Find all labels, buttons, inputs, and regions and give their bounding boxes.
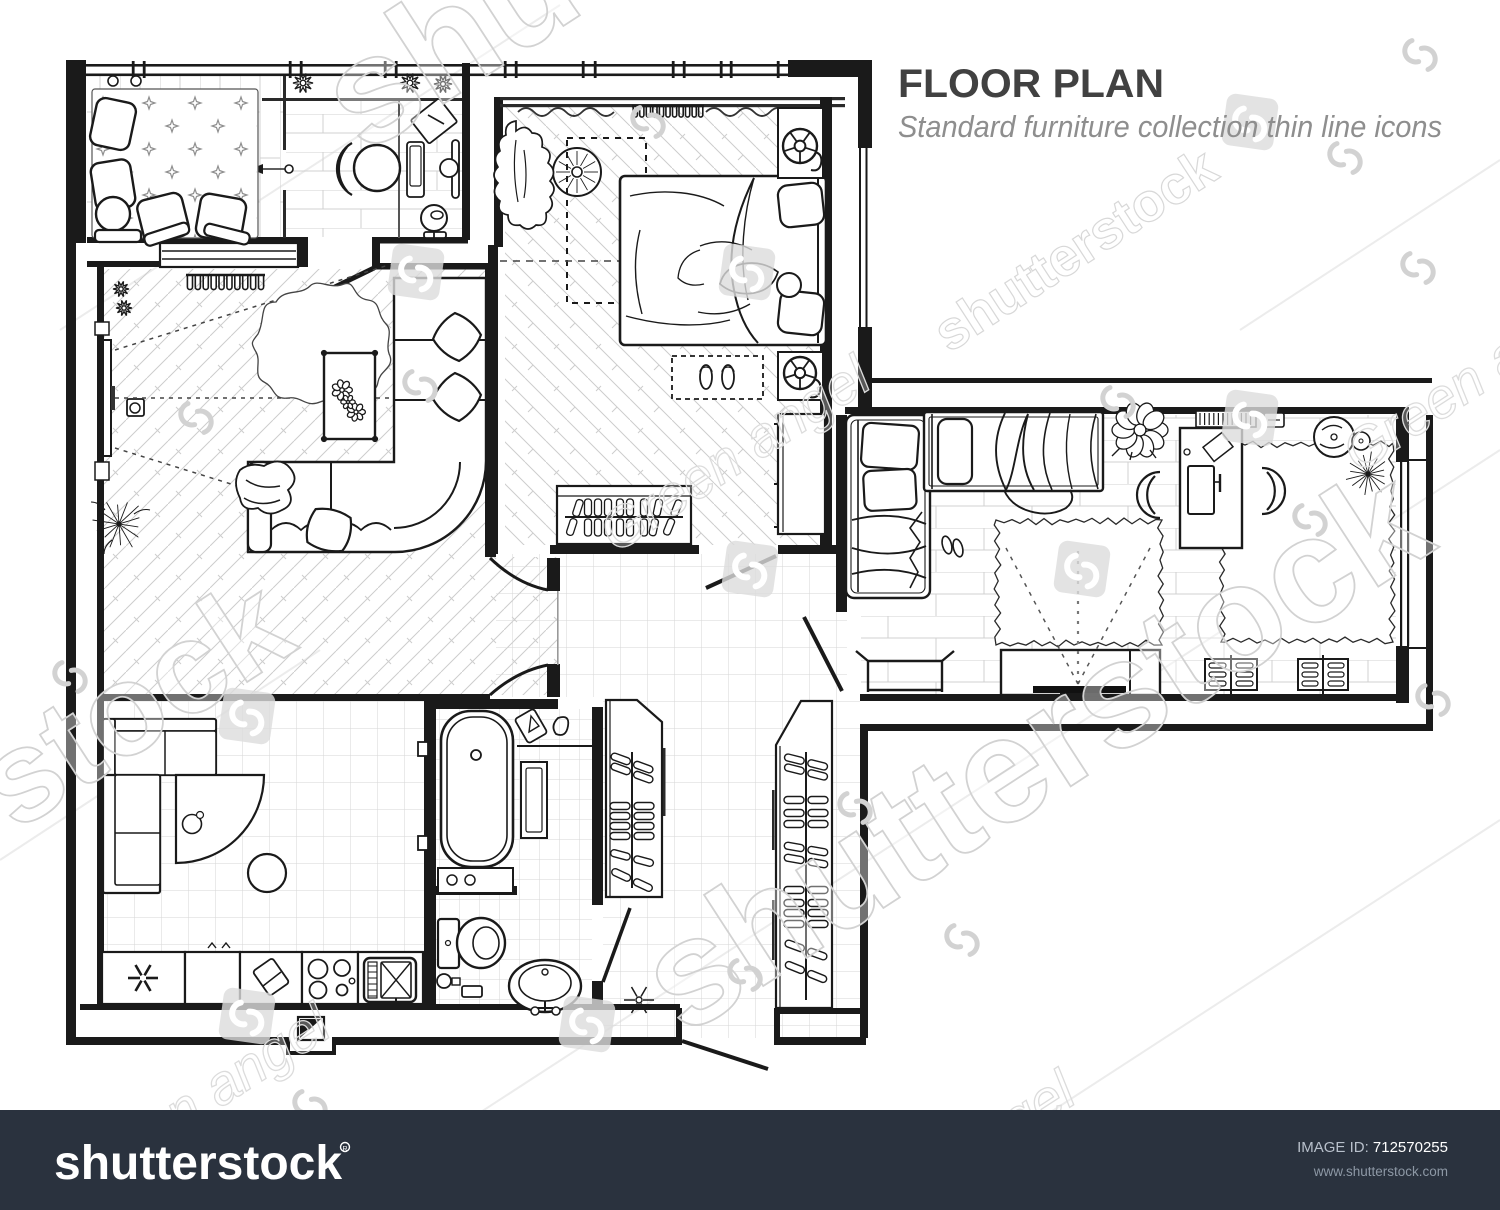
svg-text:Standard furniture collection: Standard furniture collection thin line … bbox=[898, 109, 1442, 144]
svg-text:shutterstock: shutterstock bbox=[54, 1137, 342, 1190]
svg-text:FLOOR PLAN: FLOOR PLAN bbox=[898, 62, 1164, 106]
svg-text:www.shutterstock.com: www.shutterstock.com bbox=[1313, 1164, 1448, 1179]
svg-text:IMAGE ID: 712570255: IMAGE ID: 712570255 bbox=[1297, 1139, 1448, 1156]
svg-text:R: R bbox=[342, 1146, 347, 1153]
